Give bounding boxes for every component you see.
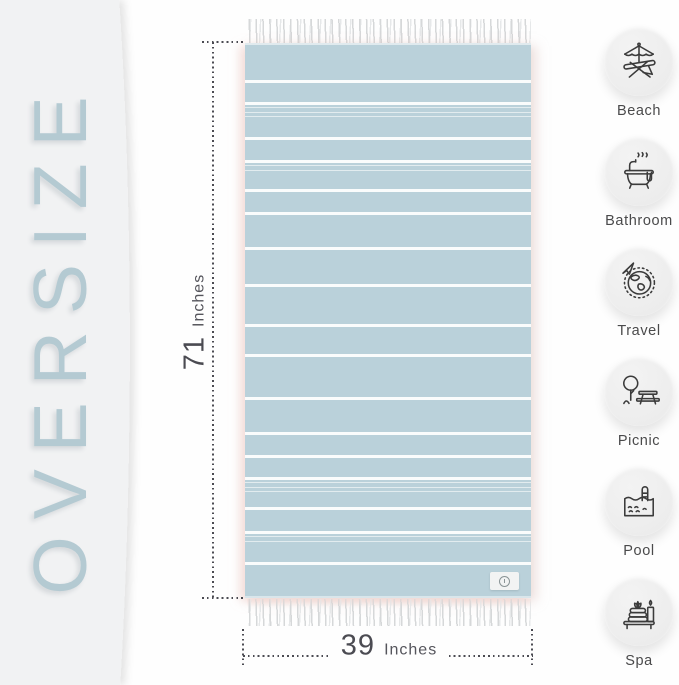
brand-tag — [490, 572, 519, 590]
towel-stripe — [245, 284, 531, 287]
use-case-label: Beach — [617, 103, 661, 119]
towel-stripe — [245, 116, 531, 117]
towel-stripe — [245, 562, 531, 565]
height-value: 71 — [179, 336, 212, 370]
picnic-icon — [604, 356, 674, 426]
height-dimension-tick-bottom — [202, 597, 244, 599]
width-unit: Inches — [384, 642, 437, 660]
use-case-label: Bathroom — [605, 213, 673, 229]
use-case-item: Picnic — [603, 356, 675, 449]
height-dimension-line — [212, 42, 214, 599]
towel-body — [245, 43, 531, 598]
use-case-label: Travel — [617, 323, 660, 339]
towel-stripe — [245, 477, 531, 480]
use-case-item: Pool — [603, 466, 675, 559]
towel-fringe-top — [247, 19, 531, 43]
use-case-label: Spa — [625, 653, 653, 669]
towel-stripe — [245, 160, 531, 163]
bathroom-icon — [604, 136, 674, 206]
towel-stripe — [245, 455, 531, 458]
towel-stripe — [245, 107, 531, 108]
pool-icon — [604, 466, 674, 536]
width-dimension-label: 39 Inches — [331, 628, 447, 665]
use-case-item: Spa — [603, 576, 675, 669]
brand-tag-logo-icon — [499, 576, 510, 587]
towel-stripe — [245, 324, 531, 327]
height-dimension-tick-top — [202, 41, 244, 43]
towel-stripe — [245, 189, 531, 192]
towel-stripe — [245, 487, 531, 488]
towel-stripe — [245, 80, 531, 83]
spa-icon — [604, 576, 674, 646]
use-case-item: Beach — [603, 26, 675, 119]
width-dimension-tick-left — [242, 629, 244, 668]
product-infographic: OVERSIZE 71 Inches 39 Inches Beach Bathr… — [0, 0, 679, 685]
towel-stripe — [245, 507, 531, 510]
use-case-label: Picnic — [618, 433, 660, 449]
height-unit: Inches — [191, 274, 209, 327]
towel-fringe-bottom — [247, 599, 531, 626]
beach-icon — [604, 26, 674, 96]
use-case-list: Beach Bathroom Travel Picnic Pool Spa — [603, 26, 675, 669]
use-case-item: Travel — [603, 246, 675, 339]
towel-stripe — [245, 397, 531, 400]
width-dimension-tick-right — [531, 629, 533, 668]
towel-stripe — [245, 102, 531, 105]
towel-stripe — [245, 212, 531, 215]
towel-stripe — [245, 137, 531, 140]
towel-stripe — [245, 491, 531, 492]
towel-stripe — [245, 536, 531, 537]
towel-stripe — [245, 165, 531, 166]
height-dimension-label: 71 Inches — [179, 274, 212, 370]
towel-stripe — [245, 531, 531, 534]
use-case-item: Bathroom — [603, 136, 675, 229]
towel-stripe — [245, 482, 531, 483]
width-value: 39 — [341, 630, 375, 663]
use-case-label: Pool — [623, 543, 654, 559]
towel-stripe — [245, 170, 531, 171]
towel-stripe — [245, 112, 531, 113]
oversize-title: OVERSIZE — [17, 79, 103, 594]
towel-stripe — [245, 247, 531, 250]
towel-stripe — [245, 354, 531, 357]
travel-icon — [604, 246, 674, 316]
towel-stripe — [245, 432, 531, 435]
towel-stripe — [245, 541, 531, 542]
